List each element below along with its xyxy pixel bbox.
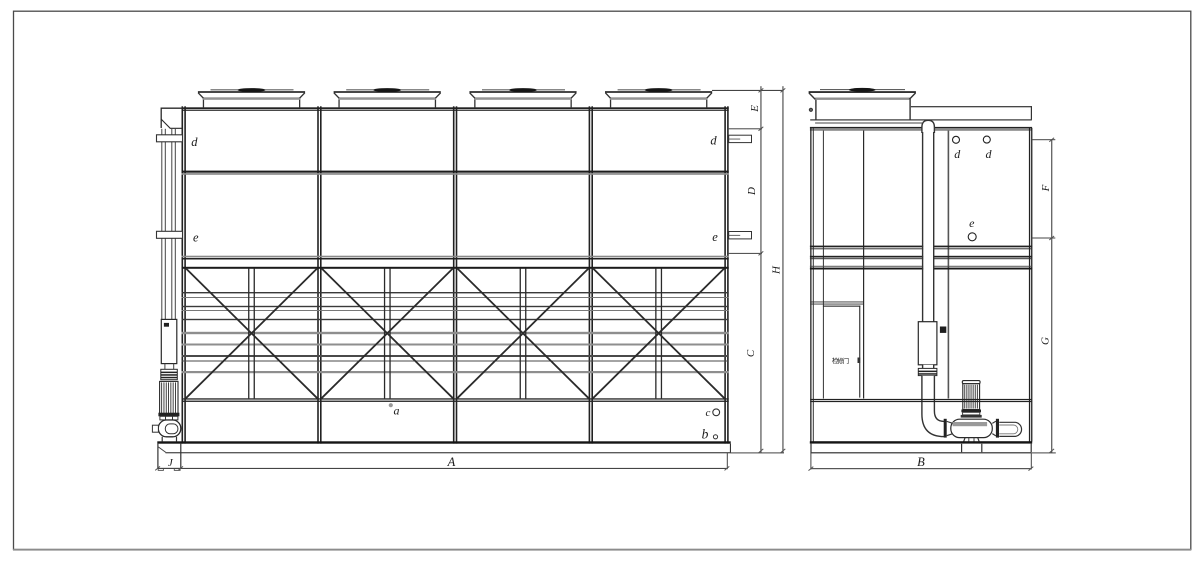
svg-text:e: e bbox=[712, 230, 718, 244]
svg-text:E: E bbox=[749, 105, 761, 113]
svg-text:c: c bbox=[706, 407, 711, 419]
svg-text:A: A bbox=[447, 455, 456, 469]
svg-text:d: d bbox=[986, 147, 993, 161]
svg-text:e: e bbox=[969, 216, 975, 230]
svg-text:D: D bbox=[746, 187, 758, 196]
svg-text:检修门: 检修门 bbox=[832, 356, 849, 365]
svg-text:G: G bbox=[1040, 337, 1052, 345]
svg-text:d: d bbox=[710, 134, 717, 148]
svg-text:e: e bbox=[193, 231, 199, 245]
svg-text:B: B bbox=[917, 455, 925, 469]
svg-text:H: H bbox=[770, 265, 782, 275]
svg-text:d: d bbox=[191, 135, 198, 149]
svg-text:d: d bbox=[954, 147, 961, 161]
svg-text:a: a bbox=[394, 404, 400, 418]
svg-text:F: F bbox=[1040, 184, 1052, 192]
svg-text:C: C bbox=[745, 349, 757, 357]
svg-text:b: b bbox=[702, 427, 709, 442]
